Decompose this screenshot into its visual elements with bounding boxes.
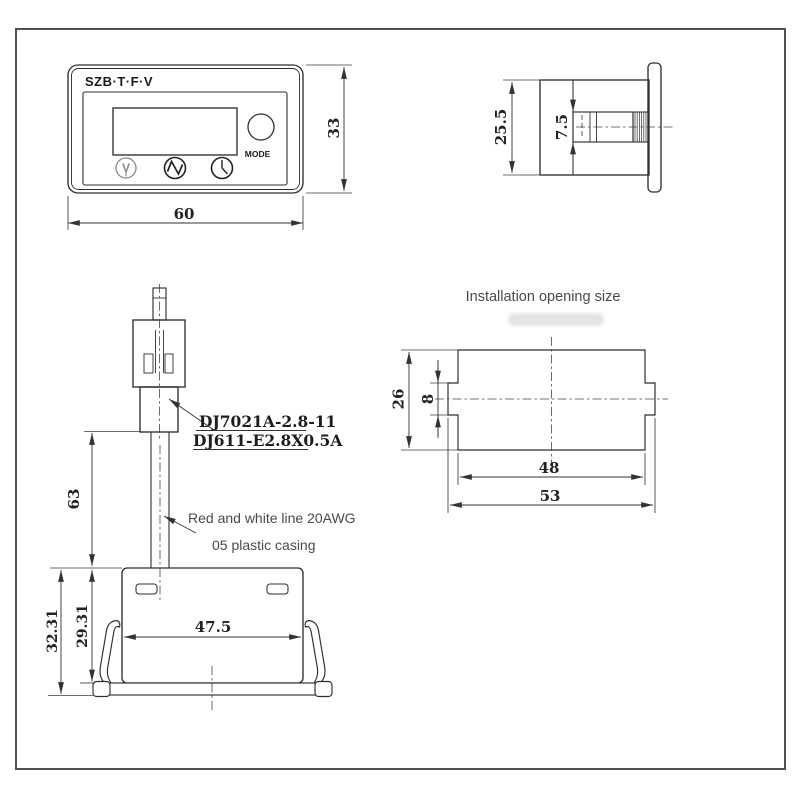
blurred-watermark [508, 313, 604, 326]
connector-slot [144, 354, 153, 373]
dim-47-5: 47.5 [195, 618, 232, 636]
dim-48: 48 [539, 459, 560, 477]
cutout-outline [448, 350, 655, 450]
front-view: SZB·T·F·V MODE V 60 33 [68, 65, 352, 230]
clock-icon-hand-hour [222, 168, 228, 174]
wire-label: Red and white line 20AWG [188, 510, 356, 526]
mounting-clip-right [305, 621, 325, 684]
connector-part-number-1: DJ7021A-2.8-11 [199, 412, 336, 431]
connector-part-number-2: DJ611-E2.8X0.5A [193, 431, 343, 450]
installation-title: Installation opening size [466, 289, 621, 305]
dim-63: 63 [65, 489, 83, 510]
dim-8: 8 [419, 394, 437, 404]
front-flange-bar [95, 683, 328, 695]
dim-60: 60 [174, 205, 195, 223]
flange-end-cap-left [93, 682, 110, 697]
mode-label: MODE [245, 149, 271, 159]
flange-end-cap-right [315, 682, 332, 697]
mode-button [248, 114, 274, 140]
lcd-display [113, 108, 237, 155]
dim-53: 53 [540, 487, 561, 505]
connector-slot [165, 354, 173, 373]
dim-33: 33 [325, 118, 343, 139]
front-flange-side [648, 63, 661, 192]
drawing-canvas: SZB·T·F·V MODE V 60 33 [0, 0, 800, 800]
waveform-icon [168, 162, 183, 175]
brand-label: SZB·T·F·V [85, 74, 153, 89]
dim-32-31: 32.31 [45, 609, 61, 653]
dim-25-5: 25.5 [492, 109, 510, 146]
harness-view: DJ7021A-2.8-11 DJ611-E2.8X0.5A Red and w… [45, 284, 356, 713]
installation-opening-view: Installation opening size 26 8 48 53 [390, 289, 669, 513]
dim-26: 26 [390, 389, 408, 410]
mounting-clip-left [100, 621, 120, 684]
connector-lower-block [140, 387, 178, 432]
technical-drawing: SZB·T·F·V MODE V 60 33 [0, 0, 800, 800]
dim-29-31: 29.31 [75, 604, 91, 648]
casing-label: 05 plastic casing [212, 537, 316, 553]
side-view: 25.5 7.5 [492, 63, 673, 192]
connector-body [133, 320, 185, 387]
dim-7-5: 7.5 [553, 114, 571, 140]
